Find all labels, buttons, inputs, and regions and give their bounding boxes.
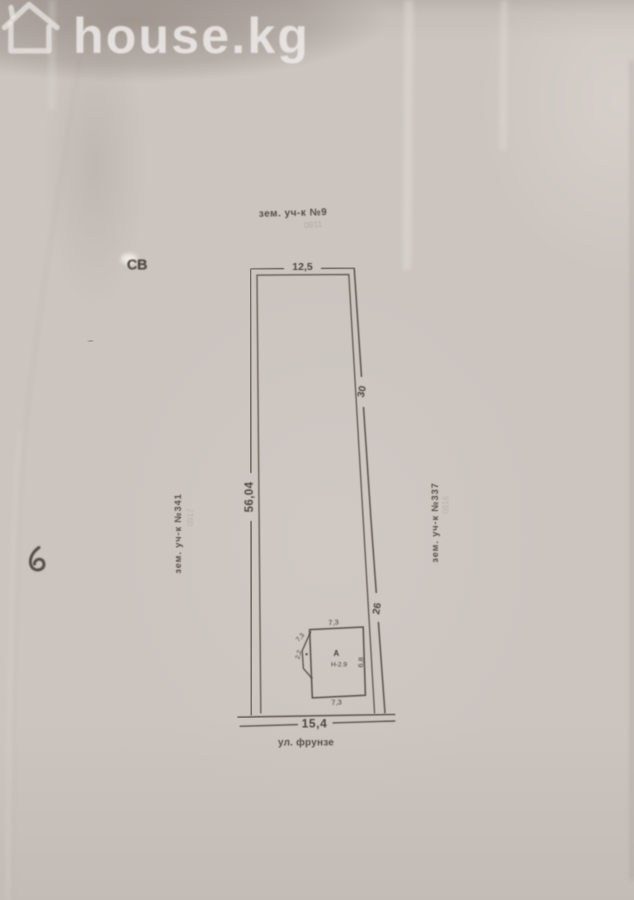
svg-text:0917: 0917	[186, 508, 195, 526]
svg-text:7,3: 7,3	[331, 698, 342, 708]
svg-text:6,8: 6,8	[356, 657, 366, 668]
svg-text:7,3: 7,3	[295, 632, 307, 644]
svg-text:12,5: 12,5	[292, 261, 313, 273]
svg-text:А: А	[333, 649, 339, 658]
svg-text:26: 26	[370, 602, 384, 616]
svg-text:0916: 0916	[442, 496, 451, 514]
svg-text:зем. уч-к №9: зем. уч-к №9	[259, 207, 328, 220]
svg-text:30: 30	[355, 385, 369, 399]
svg-text:15,4: 15,4	[302, 717, 328, 731]
svg-text:house.kg: house.kg	[73, 8, 310, 64]
svg-text:зем. уч-к №341: зем. уч-к №341	[173, 493, 183, 573]
svg-text:0911: 0911	[303, 219, 322, 231]
svg-text:зем. уч-к №337: зем. уч-к №337	[430, 482, 440, 562]
svg-text:ул. фрунзе: ул. фрунзе	[278, 737, 334, 749]
svg-text:7,3: 7,3	[328, 618, 339, 628]
svg-text:СВ: СВ	[127, 258, 147, 274]
svg-text:Н-2.9: Н-2.9	[331, 662, 347, 669]
svg-text:56,04: 56,04	[244, 481, 256, 512]
